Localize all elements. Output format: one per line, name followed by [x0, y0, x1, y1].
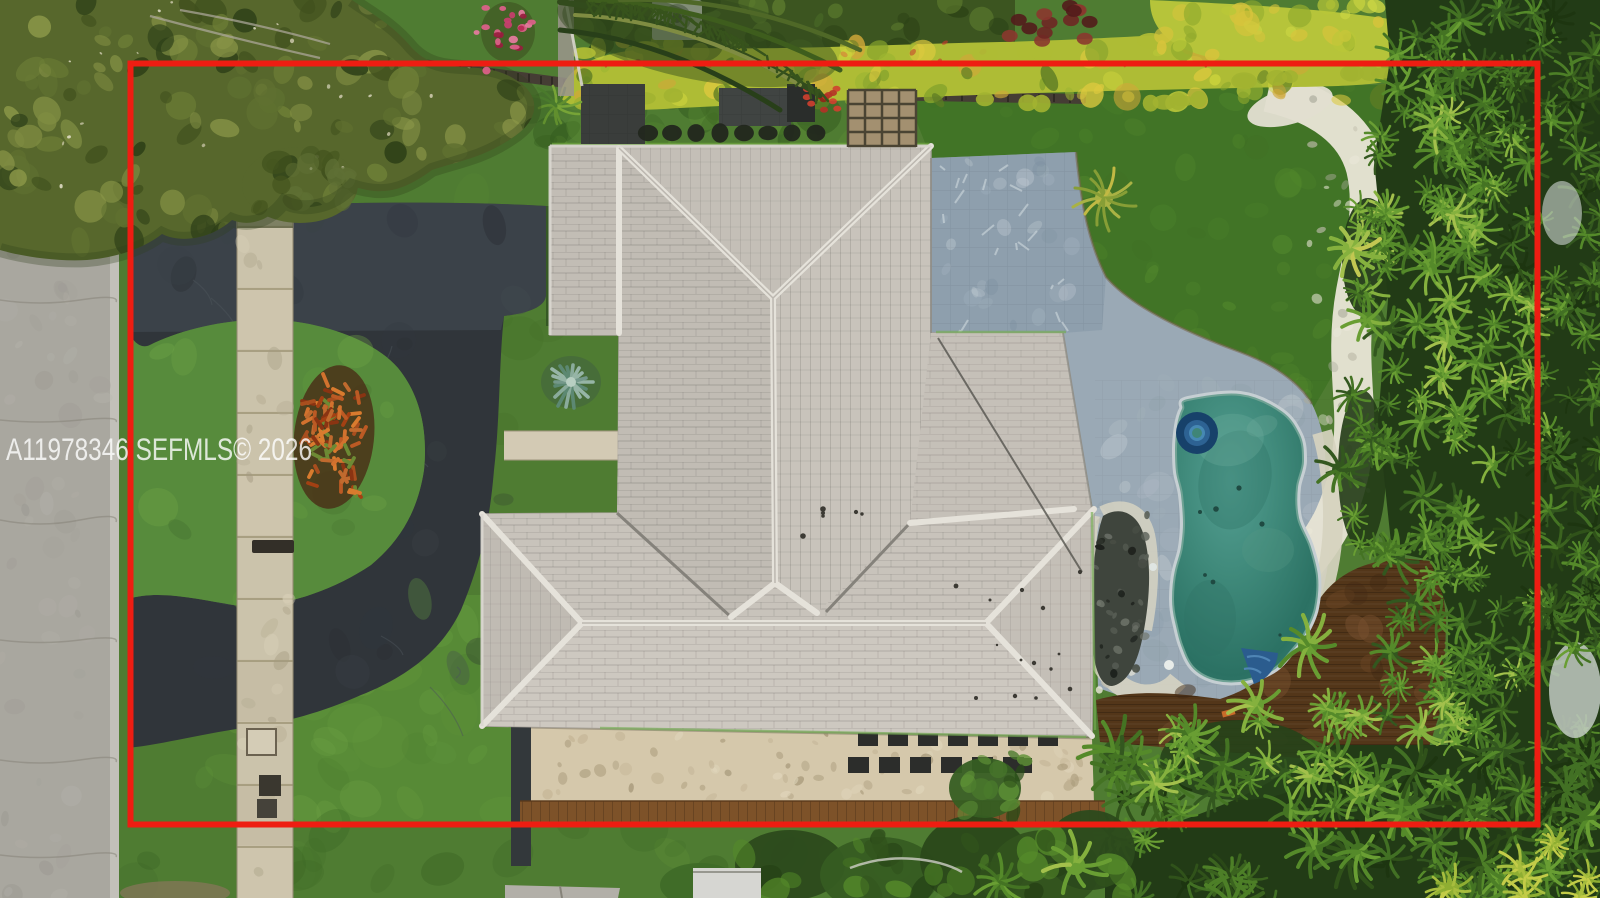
svg-text:A11978346 SEFMLS© 2026: A11978346 SEFMLS© 2026 — [6, 431, 312, 467]
